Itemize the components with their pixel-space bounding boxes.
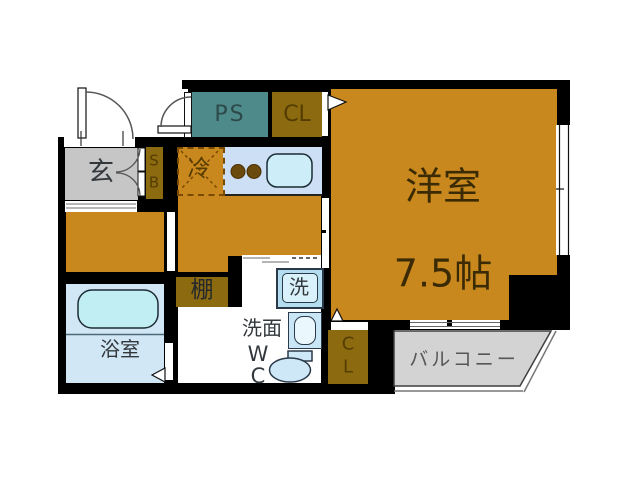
shoe-box-label: S B	[149, 150, 159, 194]
kitchen-floor-lower	[178, 256, 228, 272]
bathroom-label: 浴室	[100, 337, 140, 361]
pillar-notch	[509, 275, 570, 320]
bathroom-door-gap	[165, 343, 173, 380]
western-room-label: 洋室 7.5帖	[394, 122, 492, 297]
shelf-label: 棚	[191, 277, 214, 305]
washer-label: 洗	[289, 275, 309, 299]
floor-plan: 玄 S B PS CL 冷 洋室 7.5帖 棚 洗 洗面 W C 浴室 C L …	[0, 0, 640, 480]
sliding-door-gap	[322, 198, 329, 268]
balcony-label: バルコニー	[409, 349, 519, 372]
western-room-name: 洋室	[405, 164, 481, 208]
washroom-label: 洗面	[242, 316, 282, 340]
entry-threshold	[64, 137, 135, 147]
hall-floor	[66, 212, 164, 272]
vanity-basin	[294, 316, 316, 345]
entry-alcove	[66, 89, 188, 137]
western-room-door-gap	[322, 92, 328, 136]
balcony-window	[410, 320, 500, 329]
right-window	[556, 125, 571, 255]
bathroom-floor	[66, 284, 164, 383]
western-room-size: 7.5帖	[394, 252, 492, 296]
wc-label: W C	[248, 343, 269, 387]
hall-doorway-gap	[167, 212, 175, 271]
sliding-door-tick	[322, 230, 326, 233]
washroom-floor-left	[178, 307, 242, 383]
closet-top-label: CL	[283, 102, 311, 128]
kitchen-counter	[223, 147, 322, 196]
closet-bottom-label: C L	[342, 334, 355, 379]
balcony-window-tick	[447, 320, 452, 326]
closet-bottom-door-gap	[331, 322, 368, 330]
pipe-space-label: PS	[214, 102, 245, 128]
genkan-step	[65, 201, 137, 212]
fridge-label: 冷	[188, 156, 211, 184]
ps-door-gap	[184, 92, 192, 138]
genkan-label: 玄	[88, 157, 114, 188]
